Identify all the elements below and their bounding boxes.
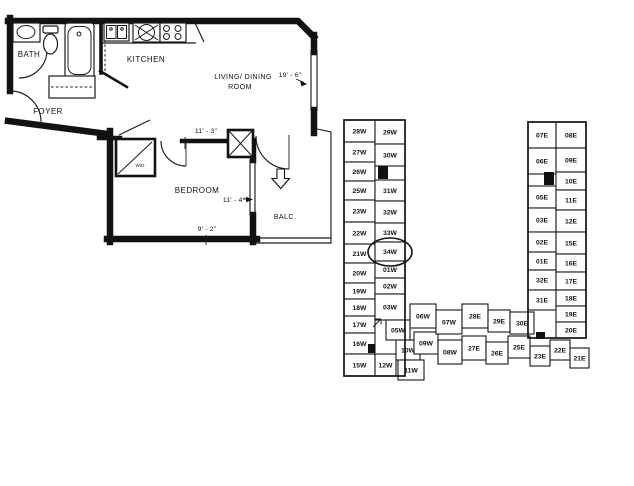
unit-label-30W: 30W xyxy=(383,152,398,159)
key-plan-units: 28W27W26W25W23W22W21W20W19W18W17W16W15W2… xyxy=(344,120,589,380)
unit-label-17E: 17E xyxy=(565,278,578,285)
unit-label-33W: 33W xyxy=(383,230,398,237)
wd-label: W/D xyxy=(136,163,146,168)
room-label-living-line1: LIVING/ DINING xyxy=(214,72,272,81)
balcony-arrow-icon xyxy=(272,169,290,189)
unit-label-10E: 10E xyxy=(565,178,578,185)
unit-label-25E: 25E xyxy=(513,344,526,351)
unit-label-06E: 06E xyxy=(536,158,549,165)
wd-closet-door-leaf xyxy=(119,120,150,135)
unit-label-16W: 16W xyxy=(353,341,368,348)
washer-dryer-closet: W/D xyxy=(116,139,155,176)
west-stair-icon xyxy=(368,344,375,353)
unit-label-03E: 03E xyxy=(536,217,549,224)
unit-label-06W: 06W xyxy=(416,313,431,320)
unit-label-19W: 19W xyxy=(353,288,368,295)
plan-sheet: W/D BATH KITCHEN FOYER LIVING/ DINING RO… xyxy=(0,0,634,486)
dim-bedroom-depth: 11' - 4" xyxy=(223,197,246,204)
unit-label-08E: 08E xyxy=(565,132,578,139)
unit-label-03W: 03W xyxy=(383,304,398,311)
unit-label-09E: 09E xyxy=(565,157,578,164)
unit-label-12E: 12E xyxy=(565,218,578,225)
toilet-tank xyxy=(43,26,58,33)
dim-bedroom-width-bottom: 9' - 2" xyxy=(198,226,217,233)
unit-label-26W: 26W xyxy=(353,169,368,176)
unit-label-22W: 22W xyxy=(353,230,368,237)
unit-label-21W: 21W xyxy=(353,251,368,258)
unit-label-21E: 21E xyxy=(573,355,586,362)
unit-label-31E: 31E xyxy=(536,297,549,304)
living-window xyxy=(311,50,317,111)
unit-label-26E: 26E xyxy=(491,350,504,357)
dim-arrow-window xyxy=(300,81,307,87)
unit-label-07E: 07E xyxy=(536,132,549,139)
unit-label-28E: 28E xyxy=(469,313,482,320)
unit-label-32W: 32W xyxy=(383,209,398,216)
unit-label-32E: 32E xyxy=(536,277,549,284)
unit-label-20E: 20E xyxy=(565,327,578,334)
dim-living-depth: 19' - 6" xyxy=(279,72,302,79)
room-label-balcony: BALC. xyxy=(274,212,297,221)
unit-label-15W: 15W xyxy=(353,362,368,369)
unit-label-16E: 16E xyxy=(565,260,578,267)
unit-label-31W: 31W xyxy=(383,188,398,195)
plan-canvas: W/D BATH KITCHEN FOYER LIVING/ DINING RO… xyxy=(0,0,634,486)
floor-plan: W/D BATH KITCHEN FOYER LIVING/ DINING RO… xyxy=(8,18,331,245)
room-label-kitchen: KITCHEN xyxy=(127,55,165,64)
unit-label-12W: 12W xyxy=(379,362,394,369)
unit-label-27W: 27W xyxy=(353,149,368,156)
unit-label-34W: 34W xyxy=(383,249,398,256)
room-label-bedroom: BEDROOM xyxy=(175,186,220,195)
unit-label-25W: 25W xyxy=(353,188,368,195)
unit-label-02W: 02W xyxy=(383,283,398,290)
west-elevator-icon xyxy=(378,166,388,179)
unit-label-29E: 29E xyxy=(493,318,506,325)
unit-label-29W: 29W xyxy=(383,129,398,136)
unit-label-10W: 10W xyxy=(401,347,416,354)
east-stair-icon xyxy=(536,332,545,339)
room-label-foyer: FOYER xyxy=(33,107,63,116)
unit-label-30E: 30E xyxy=(516,320,529,327)
bedroom-window xyxy=(250,160,255,215)
unit-label-28W: 28W xyxy=(353,128,368,135)
unit-label-07W: 07W xyxy=(442,319,457,326)
east-elevator-icon xyxy=(544,172,554,185)
bathtub xyxy=(65,23,94,78)
unit-label-27E: 27E xyxy=(468,345,481,352)
unit-label-15E: 15E xyxy=(565,240,578,247)
unit-label-11E: 11E xyxy=(565,197,577,204)
bedroom-door-arc xyxy=(161,141,186,166)
unit-label-18E: 18E xyxy=(565,295,578,302)
unit-label-11W: 11W xyxy=(404,367,418,374)
unit-label-05W: 05W xyxy=(391,327,406,334)
unit-label-20W: 20W xyxy=(353,270,368,277)
room-label-bath: BATH xyxy=(18,50,41,59)
unit-label-01E: 01E xyxy=(536,258,549,265)
unit-label-05E: 05E xyxy=(536,194,549,201)
cooktop-burners xyxy=(160,23,186,42)
room-label-living-line2: ROOM xyxy=(228,82,252,91)
unit-label-23E: 23E xyxy=(534,353,547,360)
unit-label-23W: 23W xyxy=(353,208,368,215)
unit-label-02E: 02E xyxy=(536,239,549,246)
unit-label-01W: 01W xyxy=(383,267,398,274)
unit-label-09W: 09W xyxy=(419,340,434,347)
unit-label-08W: 08W xyxy=(443,349,458,356)
toilet-bowl xyxy=(44,34,58,54)
key-plan: 28W27W26W25W23W22W21W20W19W18W17W16W15W2… xyxy=(344,120,589,380)
unit-label-19E: 19E xyxy=(565,311,578,318)
unit-label-18W: 18W xyxy=(353,305,368,312)
foyer-closet xyxy=(49,76,95,98)
shaft-closet xyxy=(228,130,253,157)
dim-bedroom-width-top: 11' - 3" xyxy=(195,128,218,135)
unit-label-22E: 22E xyxy=(554,347,567,354)
balcony-door-arc xyxy=(256,136,289,169)
unit-label-17W: 17W xyxy=(353,322,368,329)
balcony-outline xyxy=(255,129,331,243)
